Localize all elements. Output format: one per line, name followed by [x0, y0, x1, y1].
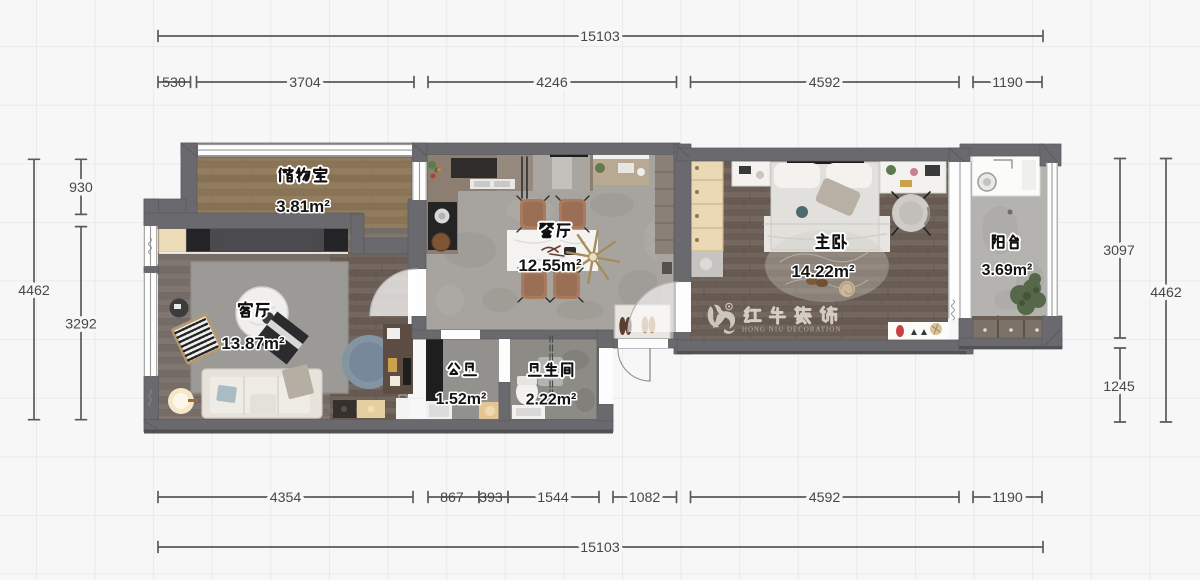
svg-text:393: 393: [479, 490, 503, 506]
svg-text:HONG NIU DECORATION: HONG NIU DECORATION: [742, 327, 841, 334]
svg-text:4246: 4246: [536, 75, 568, 91]
svg-text:14.22m²: 14.22m²: [791, 262, 855, 281]
svg-text:13.87m²: 13.87m²: [221, 334, 285, 353]
svg-text:3097: 3097: [1103, 243, 1135, 259]
svg-text:3292: 3292: [65, 317, 97, 333]
svg-text:4592: 4592: [809, 490, 841, 506]
svg-text:3.81m²: 3.81m²: [276, 197, 330, 216]
svg-text:3704: 3704: [289, 75, 321, 91]
svg-text:4462: 4462: [1150, 285, 1182, 301]
svg-text:4354: 4354: [270, 490, 302, 506]
svg-text:3.69m²: 3.69m²: [982, 262, 1033, 279]
svg-text:4462: 4462: [18, 283, 50, 299]
svg-text:930: 930: [69, 180, 93, 196]
svg-text:1544: 1544: [537, 490, 569, 506]
svg-text:1190: 1190: [992, 75, 1023, 91]
svg-text:15103: 15103: [580, 29, 620, 45]
svg-text:2.22m²: 2.22m²: [526, 392, 577, 409]
svg-text:1190: 1190: [992, 490, 1023, 506]
svg-text:4592: 4592: [809, 75, 841, 91]
svg-text:867: 867: [440, 490, 464, 506]
svg-text:1082: 1082: [629, 490, 661, 506]
svg-text:1245: 1245: [1103, 379, 1135, 395]
svg-text:530: 530: [162, 75, 186, 91]
svg-text:12.55m²: 12.55m²: [518, 256, 582, 275]
svg-text:15103: 15103: [580, 540, 620, 556]
svg-text:1.52m²: 1.52m²: [436, 391, 487, 408]
